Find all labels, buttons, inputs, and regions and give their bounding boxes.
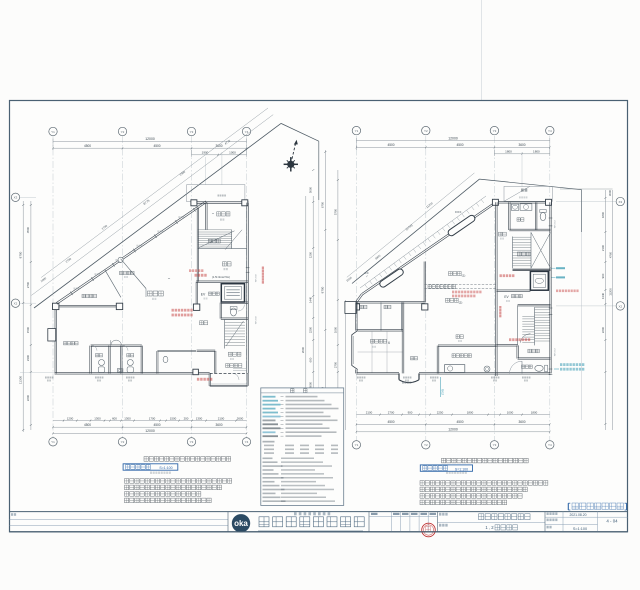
svg-text:S=1:100: S=1:100 [159, 466, 172, 470]
svg-text:12000: 12000 [145, 429, 155, 433]
svg-text:12000: 12000 [448, 428, 458, 432]
svg-text:WF-9607: WF-9607 [256, 315, 258, 324]
svg-text:3600: 3600 [215, 423, 222, 427]
svg-text:1000: 1000 [507, 410, 514, 414]
svg-text:1300: 1300 [94, 416, 101, 420]
svg-text:1440: 1440 [309, 296, 313, 303]
svg-text:2100: 2100 [218, 416, 225, 420]
svg-text:1800: 1800 [531, 410, 538, 414]
svg-text:Y4: Y4 [548, 443, 552, 447]
svg-text:11200: 11200 [608, 288, 612, 296]
svg-text:2021.08.20: 2021.08.20 [570, 513, 587, 517]
svg-text:900: 900 [408, 410, 413, 414]
svg-text:2100: 2100 [601, 244, 605, 251]
svg-text:3000: 3000 [309, 381, 313, 388]
svg-text:2100: 2100 [366, 410, 373, 414]
svg-text:Y2: Y2 [424, 129, 428, 133]
svg-text:6700: 6700 [321, 201, 325, 208]
svg-text:WF-5617: WF-5617 [555, 347, 557, 356]
svg-text:1000: 1000 [229, 151, 236, 155]
svg-text:(2): (2) [459, 300, 463, 304]
svg-text:200: 200 [184, 416, 189, 420]
svg-text:(1.5t 3mx2.5m): (1.5t 3mx2.5m) [212, 275, 230, 279]
svg-text:1800: 1800 [601, 211, 605, 218]
svg-text:1000: 1000 [333, 326, 337, 333]
svg-text:Y1: Y1 [51, 130, 55, 134]
svg-text:1500: 1500 [26, 326, 30, 333]
svg-text:4500: 4500 [84, 423, 91, 427]
svg-text:X3: X3 [618, 200, 622, 204]
svg-text:2700: 2700 [388, 410, 395, 414]
svg-text:2700: 2700 [333, 361, 337, 368]
svg-text:Y3: Y3 [190, 130, 194, 134]
svg-text:Y3: Y3 [493, 129, 497, 133]
svg-text:Y1: Y1 [355, 443, 359, 447]
svg-text:1 , 2: 1 , 2 [485, 525, 494, 530]
svg-text:2200: 2200 [309, 326, 313, 333]
svg-text:3600: 3600 [518, 143, 525, 147]
svg-text:11300: 11300 [19, 376, 23, 384]
svg-text:4500: 4500 [387, 420, 394, 424]
svg-text:1500: 1500 [170, 416, 177, 420]
svg-text:Y4: Y4 [548, 129, 552, 133]
svg-text:1340: 1340 [601, 292, 605, 299]
svg-text:X2: X2 [618, 304, 622, 308]
svg-text:1900: 1900 [202, 151, 209, 155]
svg-text:1700: 1700 [149, 416, 156, 420]
svg-text:4500: 4500 [153, 144, 160, 148]
svg-text:WF-5617: WF-5617 [555, 219, 557, 228]
svg-text:WF-9607: WF-9607 [256, 273, 258, 282]
svg-text:X3: X3 [14, 196, 18, 200]
svg-text:EV: EV [201, 293, 206, 297]
svg-text:1200: 1200 [309, 251, 313, 258]
svg-text:S=1:100: S=1:100 [455, 467, 468, 471]
svg-text:5000: 5000 [309, 186, 313, 193]
svg-text:600: 600 [309, 357, 313, 362]
svg-text:4500: 4500 [387, 143, 394, 147]
svg-text:2600: 2600 [237, 416, 244, 420]
svg-text:2200: 2200 [601, 326, 605, 333]
svg-text:3000: 3000 [608, 189, 612, 196]
svg-text:(1): (1) [462, 274, 466, 278]
svg-text:4 - 04: 4 - 04 [606, 518, 618, 523]
svg-text:3600: 3600 [518, 420, 525, 424]
svg-text:Y3: Y3 [493, 443, 497, 447]
svg-text:8700: 8700 [19, 251, 23, 258]
svg-text:1300: 1300 [196, 416, 203, 420]
svg-text:1800: 1800 [533, 150, 540, 154]
svg-text:4760: 4760 [608, 251, 612, 258]
svg-text:4500: 4500 [456, 143, 463, 147]
svg-text:2700: 2700 [26, 281, 30, 288]
svg-text:8700: 8700 [321, 286, 325, 293]
svg-text:S=1:100: S=1:100 [573, 527, 587, 531]
svg-text:Y1: Y1 [355, 129, 359, 133]
svg-text:2300: 2300 [26, 354, 30, 361]
svg-text:1800: 1800 [505, 150, 512, 154]
svg-text:1800: 1800 [467, 410, 474, 414]
svg-text:Y4: Y4 [245, 440, 249, 444]
svg-text:Y2: Y2 [121, 130, 125, 134]
svg-text:4500: 4500 [26, 226, 30, 233]
svg-text:2250: 2250 [437, 410, 444, 414]
svg-text:1200: 1200 [67, 416, 74, 420]
svg-text:Y1: Y1 [51, 440, 55, 444]
svg-text:Y2: Y2 [121, 440, 125, 444]
svg-text:X2: X2 [14, 302, 18, 306]
svg-text:4500: 4500 [456, 420, 463, 424]
svg-text:4500: 4500 [84, 144, 91, 148]
svg-text:**: ** [119, 261, 121, 265]
svg-text:(750): (750) [441, 389, 445, 395]
svg-text:1300: 1300 [124, 416, 131, 420]
svg-text:Y2: Y2 [424, 443, 428, 447]
svg-text:4500: 4500 [153, 423, 160, 427]
svg-text:2000: 2000 [301, 346, 305, 353]
svg-text:2200: 2200 [26, 394, 30, 401]
svg-text:12000: 12000 [448, 136, 458, 140]
svg-text:600: 600 [112, 416, 117, 420]
svg-text:Y3: Y3 [190, 440, 194, 444]
svg-text:5700: 5700 [333, 208, 337, 215]
svg-text:12000: 12000 [145, 137, 155, 141]
svg-text:6: 6 [388, 341, 390, 345]
svg-text:900: 900 [601, 273, 605, 278]
svg-text:oka: oka [234, 519, 248, 528]
